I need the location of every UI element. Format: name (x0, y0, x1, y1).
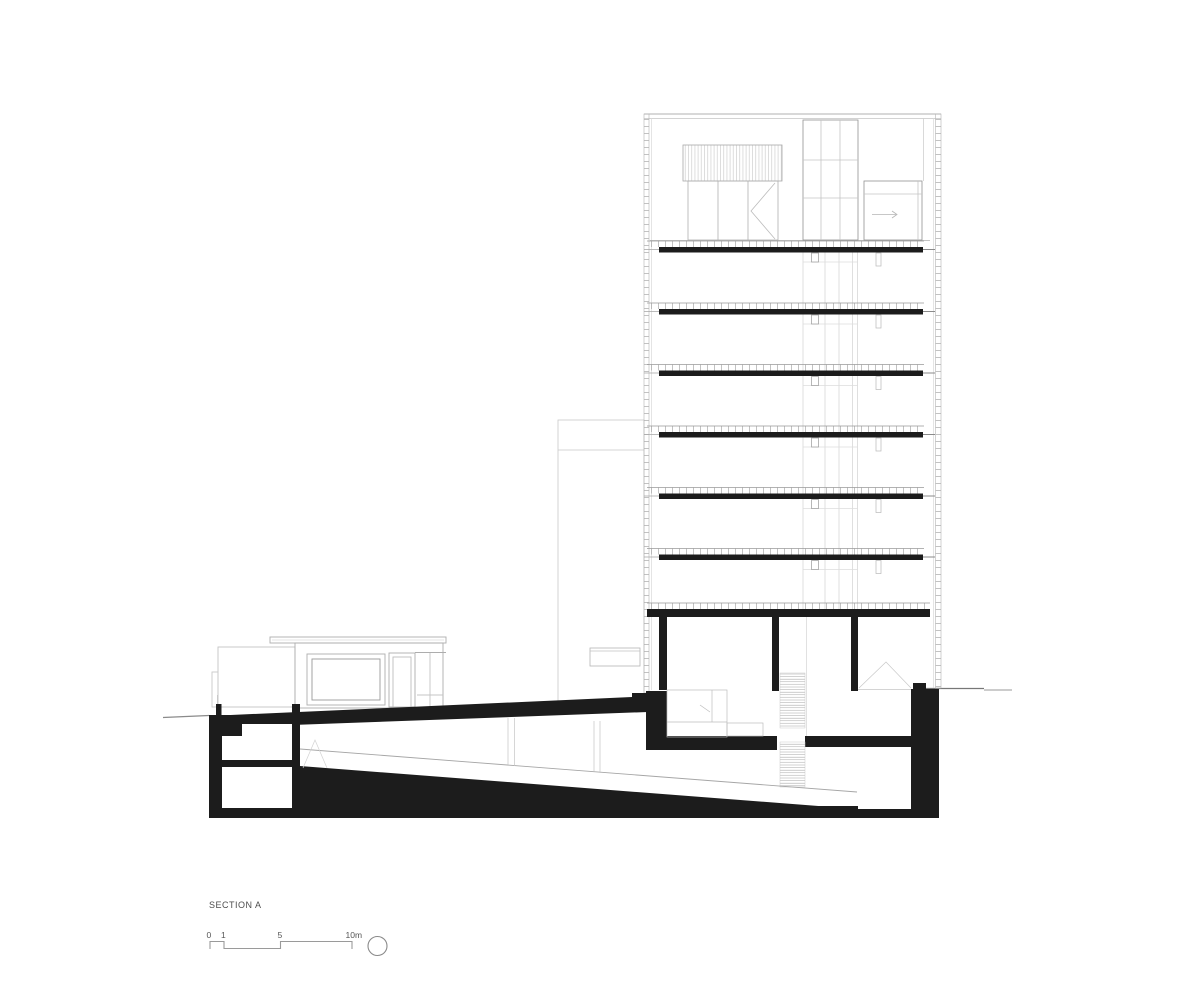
cut-wall (659, 617, 667, 690)
tower-floors (644, 241, 935, 609)
ramp-foundation-wedge (300, 766, 857, 818)
slope-marker (303, 740, 327, 768)
floor-slab (644, 549, 935, 574)
scale-label-1: 1 (221, 930, 226, 940)
roof-louver-box (683, 145, 782, 181)
scale-label-5: 5 (278, 930, 283, 940)
parapet-post (292, 704, 300, 716)
stair-flight (780, 673, 805, 728)
stair-flight (780, 742, 805, 787)
annotations: SECTION A 0 1 5 10m (207, 900, 388, 956)
canopy (590, 648, 640, 666)
basement-room (858, 747, 911, 809)
floor-slab (644, 241, 935, 266)
scale-bar (210, 942, 352, 950)
roof-stair-box (864, 181, 922, 240)
cut-wall (851, 617, 858, 691)
section-drawing: SECTION A 0 1 5 10m (0, 0, 1198, 986)
facade-mullion-right (936, 114, 942, 688)
background-buildings (558, 420, 644, 702)
elevator-overrun (803, 120, 858, 240)
gable-outline (859, 662, 911, 688)
builtin-furniture (667, 690, 727, 737)
parapet-post (216, 704, 222, 716)
section-title: SECTION A (209, 900, 262, 910)
floor-slab (644, 488, 935, 513)
cut-structure (209, 609, 939, 818)
penthouse (650, 118, 930, 241)
basement-slab (805, 736, 913, 747)
floor-slab (644, 303, 935, 328)
floor-slab (644, 426, 935, 451)
drawing-sheet: SECTION A 0 1 5 10m (0, 0, 1198, 986)
cut-wall (772, 617, 779, 691)
scale-label-0: 0 (207, 930, 212, 940)
ground-floor-slab (647, 609, 930, 617)
scale-label-10m: 10m (346, 930, 363, 940)
roof-glass-box (688, 181, 778, 240)
north-symbol-icon (368, 937, 387, 956)
floor-slab (644, 365, 935, 390)
basement-wall-right (911, 689, 939, 818)
pavilion-window (307, 654, 385, 705)
basement-room (222, 767, 292, 808)
pavilion (212, 637, 446, 708)
basement-slab (662, 736, 777, 750)
door-swing (751, 183, 775, 239)
